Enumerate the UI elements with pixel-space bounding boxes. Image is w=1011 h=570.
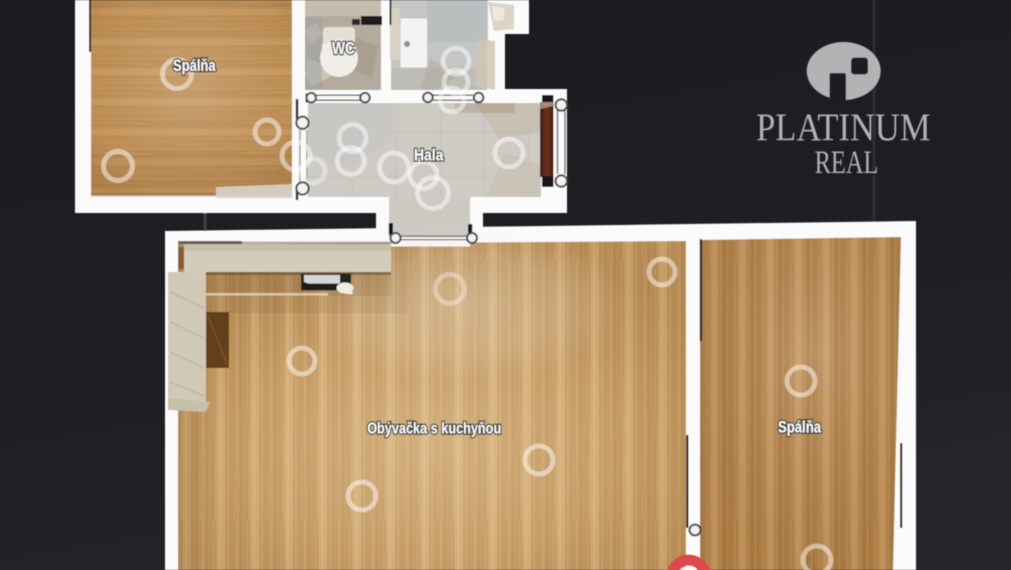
svg-text:REAL: REAL bbox=[815, 145, 879, 181]
svg-text:Hala: Hala bbox=[414, 145, 444, 164]
svg-text:Spálňa: Spálňa bbox=[778, 419, 822, 437]
svg-text:WC: WC bbox=[332, 38, 355, 58]
svg-text:Spálňa: Spálňa bbox=[173, 57, 216, 75]
svg-text:Obývačka s kuchyňou: Obývačka s kuchyňou bbox=[367, 421, 501, 438]
svg-text:PLATINUM: PLATINUM bbox=[756, 105, 930, 148]
